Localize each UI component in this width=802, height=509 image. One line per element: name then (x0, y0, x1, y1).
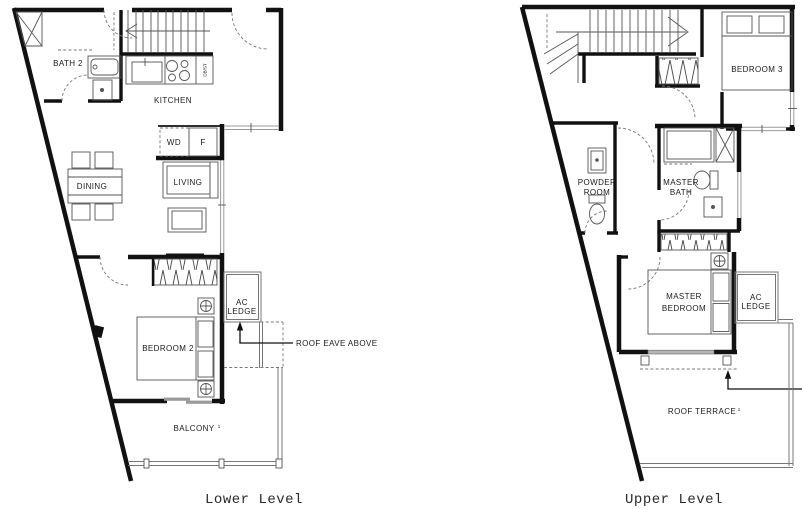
label-ac-ledge-1: AC (236, 298, 248, 307)
room-label-kitchen: KITCHEN (154, 96, 192, 105)
kitchen-counter: DB/ST KITCHEN (126, 56, 213, 105)
ac-unit-symbol (711, 253, 728, 269)
dining-area: DINING (68, 152, 122, 220)
label-fridge: F (200, 138, 205, 147)
chair (72, 204, 90, 220)
room-label-masterbath-1: MASTER (663, 178, 699, 187)
label-ac-ledge-2: LEDGE (741, 302, 770, 311)
master-bedroom-room: MASTER BEDROOM (619, 252, 737, 369)
annotation-roof-eave: ROOF EAVE ABOVE (296, 339, 377, 348)
room-label-roof-terrace: ROOF TERRACE (668, 407, 736, 416)
upper-level-plan: BEDROOM 3 POWDER ROOM (522, 7, 802, 508)
bedroom3-window-right (788, 92, 797, 125)
bedroom3-door-swing (662, 86, 695, 119)
chair (95, 152, 113, 168)
floor-plan-page: BATH 2 DB/ST (0, 0, 802, 509)
ac-unit-symbol (198, 298, 214, 314)
ac-unit-symbol (198, 381, 214, 397)
powder-room: POWDER ROOM (551, 123, 618, 233)
room-label-powder-1: POWDER (578, 178, 616, 187)
vanity-sink (93, 80, 112, 100)
shaft-cross (716, 128, 734, 162)
bedroom3-window-bottom (740, 125, 786, 133)
roof-eave-annotation: ROOF EAVE ABOVE (237, 322, 378, 349)
ac-ledge-upper: AC LEDGE (735, 272, 793, 323)
room-label-powder-2: ROOM (584, 188, 611, 197)
caption-lower-level: Lower Level (205, 492, 303, 508)
vanity-sink (588, 148, 606, 173)
balcony-footnote: 1 (218, 424, 221, 429)
laundry-nook: WD F (156, 126, 224, 158)
room-label-masterbed-2: BEDROOM (662, 304, 706, 313)
chair (72, 152, 90, 168)
bath2-room: BATH 2 (44, 10, 121, 101)
master-bath-room: MASTER BATH (655, 126, 742, 233)
room-label-masterbed-1: MASTER (666, 292, 702, 301)
toilet (589, 195, 605, 224)
roof-terrace-parapet (640, 323, 793, 468)
room-label-bedroom3: BEDROOM 3 (731, 65, 783, 74)
lower-level-plan: BATH 2 DB/ST (14, 8, 377, 508)
stairs-lower (114, 10, 213, 54)
cabinet-label-dbst: DB/ST (203, 63, 208, 77)
label-wd: WD (167, 138, 181, 147)
stove-hob (167, 61, 190, 82)
room-label-bath2: BATH 2 (53, 59, 83, 68)
label-ac-ledge-1: AC (750, 293, 762, 302)
ac-ledge-lower: AC LEDGE (224, 272, 263, 368)
label-ac-ledge-2: LEDGE (227, 307, 256, 316)
bed (648, 270, 731, 334)
bedroom3-room: BEDROOM 3 (722, 12, 792, 90)
bathtub (88, 56, 121, 78)
coffee-table (168, 208, 206, 232)
roof-eave-leader (725, 370, 802, 389)
post-marker (723, 356, 731, 365)
room-label-dining: DINING (77, 182, 107, 191)
living-area: LIVING (163, 162, 218, 232)
bath-window (738, 172, 741, 218)
floor-plan-canvas: BATH 2 DB/ST (0, 0, 802, 509)
shower (664, 128, 714, 164)
kitchen-window (224, 123, 279, 133)
bed (722, 12, 792, 90)
living-window (218, 160, 226, 253)
entrance-door-swing (232, 13, 268, 49)
post-marker (641, 356, 649, 365)
caption-upper-level: Upper Level (625, 492, 723, 508)
kitchen-sink (132, 58, 162, 82)
room-label-bedroom2: BEDROOM 2 (142, 344, 194, 353)
room-label-balcony: BALCONY (173, 424, 214, 433)
sliding-door (164, 398, 212, 404)
roof-eave-outline (224, 322, 283, 368)
lower-outer-walls (14, 8, 281, 481)
vanity-sink (704, 197, 722, 217)
bedroom-sliding-window (648, 350, 714, 354)
roof-terrace-footnote: 1 (738, 407, 741, 412)
hall-door-swing (618, 128, 654, 164)
room-label-living: LIVING (174, 178, 203, 187)
wardrobe (659, 231, 729, 252)
wardrobe (655, 56, 700, 86)
chair (95, 204, 113, 220)
room-label-masterbath-2: BATH (670, 188, 692, 197)
